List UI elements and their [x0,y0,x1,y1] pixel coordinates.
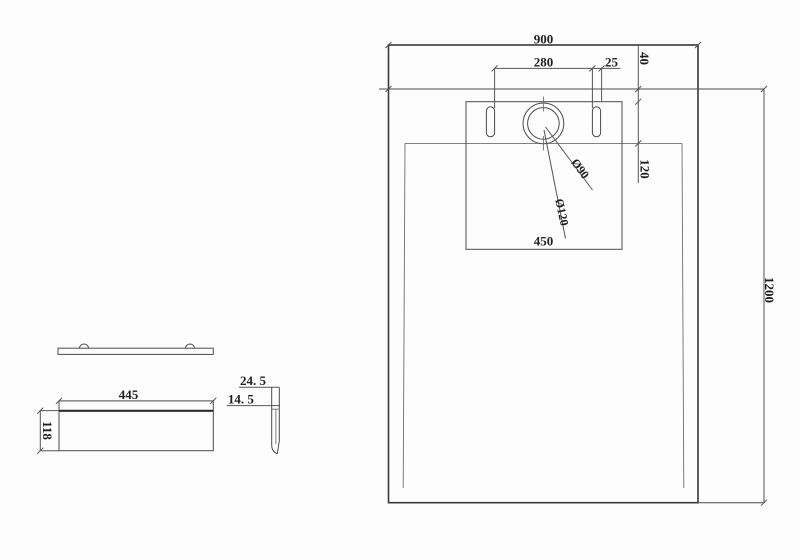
dim-118-label: 118 [40,421,55,440]
top-view: 1200 900 450 Ø90 Ø120 280 25 40 12 [379,32,777,503]
mounting-slot-left [486,107,494,137]
dimension-ticks [37,42,767,506]
dim-445-label: 445 [119,387,139,402]
dim-120-label: 120 [638,159,653,179]
dim-1200-label: 1200 [762,277,777,303]
edge-profile-outer-line [272,387,278,454]
front-panel-rect [59,401,213,451]
edge-profile-inner-line [277,387,279,454]
panel-edge-bar [58,348,213,354]
dim-25-label: 25 [605,55,619,70]
cad-drawing-canvas: 1200 900 450 Ø90 Ø120 280 25 40 12 [0,0,800,560]
dim-14-5-label: 14. 5 [228,392,255,407]
dim-450-label: 450 [534,234,554,249]
panel-edge-view [58,344,213,354]
edge-section-detail: 24. 5 14. 5 [227,373,280,454]
dim-280-label: 280 [534,55,554,70]
dim-dia120-label: Ø120 [552,197,571,227]
dim-dia90-label: Ø90 [568,156,592,181]
floor-slope-line-right [682,143,684,488]
mounting-slot-right [592,107,600,137]
panel-clip-bump-right [186,344,195,348]
dim-40-label: 40 [637,52,652,65]
leader-dia90-line [546,127,593,190]
dim-24-5-label: 24. 5 [240,373,267,388]
front-view: 445 118 [40,387,213,451]
floor-slope-line-left [403,143,405,488]
panel-clip-bump-left [80,344,89,348]
dim-900-label: 900 [534,32,554,47]
